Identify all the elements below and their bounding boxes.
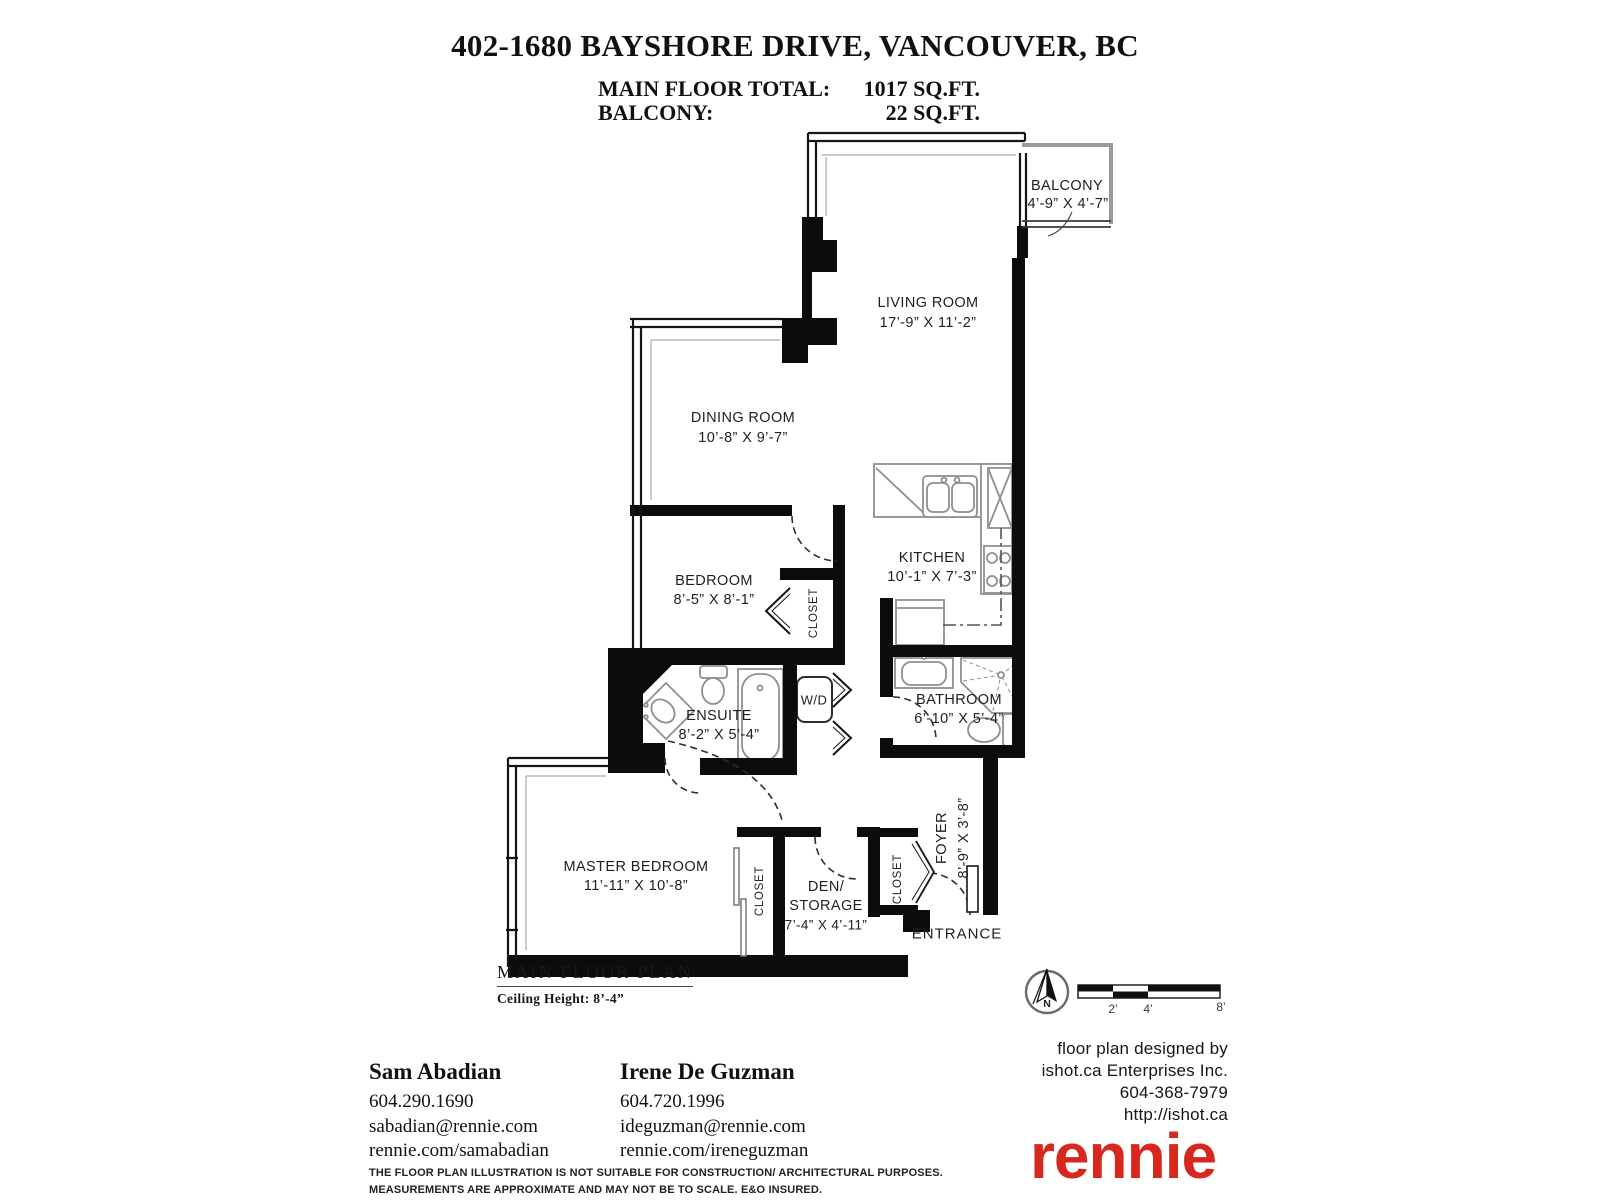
scale-bar (1078, 985, 1220, 998)
summary-label: BALCONY: (598, 101, 713, 124)
agent-card-2: Irene De Guzman 604.720.1996 ideguzman@r… (620, 1058, 808, 1164)
room-label-kitchen: KITCHEN (899, 550, 965, 566)
agent-phone: 604.290.1690 (369, 1090, 549, 1115)
sliding-closet-doors (734, 848, 746, 956)
floorplan-page: 402-1680 BAYSHORE DRIVE, VANCOUVER, BC M… (0, 0, 1600, 1200)
summary-row: BALCONY: 22 SQ.FT. (598, 101, 980, 124)
scale-tick-4ft: 4’ (1143, 1002, 1152, 1016)
designer-phone: 604-368-7979 (1042, 1082, 1228, 1104)
room-dims-master: 11’-11” X 10’-8” (584, 878, 688, 894)
room-dims-dining: 10’-8” X 9’-7” (698, 430, 787, 446)
designer-line-1: floor plan designed by (1042, 1038, 1228, 1060)
agent-website: rennie.com/ireneguzman (620, 1139, 808, 1164)
agent-name: Sam Abadian (369, 1058, 549, 1085)
room-dims-foyer: 8’-9” X 3’-8” (956, 798, 972, 879)
room-dims-balcony: 4’-9” X 4’-7” (1028, 196, 1109, 212)
closet-label-master: CLOSET (754, 866, 766, 916)
area-summary: MAIN FLOOR TOTAL: 1017 SQ.FT. BALCONY: 2… (598, 77, 980, 125)
room-dims-den: 7’-4” X 4’-11” (785, 918, 868, 933)
designer-line-2: ishot.ca Enterprises Inc. (1042, 1060, 1228, 1082)
room-label-bedroom: BEDROOM (675, 573, 753, 589)
room-label-dining: DINING ROOM (691, 410, 795, 426)
room-label-master: MASTER BEDROOM (564, 859, 709, 875)
room-label-foyer: FOYER (934, 812, 950, 864)
agent-website: rennie.com/samabadian (369, 1139, 549, 1164)
room-dims-living: 17’-9” X 11’-2” (880, 315, 977, 331)
compass-north-label: N (1043, 998, 1051, 1010)
disclaimer-line-1: THE FLOOR PLAN ILLUSTRATION IS NOT SUITA… (369, 1165, 943, 1182)
room-dims-bedroom: 8’-5” X 8’-1” (674, 592, 755, 608)
disclaimer-line-2: MEASUREMENTS ARE APPROXIMATE AND MAY NOT… (369, 1182, 943, 1199)
room-dims-bathroom: 6’-10” X 5’-4” (914, 711, 1003, 727)
room-label-balcony: BALCONY (1031, 178, 1103, 194)
room-label-ensuite: ENSUITE (686, 708, 752, 724)
room-label-den-1: DEN/ (808, 879, 844, 895)
room-label-living: LIVING ROOM (877, 295, 978, 311)
plan-name-heading: MAIN FLOOR PLAN (497, 962, 693, 987)
disclaimer: THE FLOOR PLAN ILLUSTRATION IS NOT SUITA… (369, 1165, 943, 1199)
designer-credit: floor plan designed by ishot.ca Enterpri… (1042, 1038, 1228, 1126)
ceiling-height: Ceiling Height: 8’-4” (497, 991, 693, 1007)
summary-value: 22 SQ.FT. (886, 101, 980, 124)
room-label-den-2: STORAGE (789, 898, 862, 914)
scale-tick-2ft: 2’ (1108, 1002, 1117, 1016)
agent-phone: 604.720.1996 (620, 1090, 808, 1115)
summary-value: 1017 SQ.FT. (864, 77, 980, 100)
entrance-label: ENTRANCE (912, 926, 1003, 943)
summary-label: MAIN FLOOR TOTAL: (598, 77, 830, 100)
rennie-logo: rennie (1030, 1124, 1216, 1188)
closet-label-foyer: CLOSET (892, 854, 904, 904)
room-dims-kitchen: 10’-1” X 7’-3” (887, 569, 976, 585)
agent-email: ideguzman@rennie.com (620, 1115, 808, 1140)
summary-row: MAIN FLOOR TOTAL: 1017 SQ.FT. (598, 77, 980, 100)
agent-name: Irene De Guzman (620, 1058, 808, 1085)
scale-tick-8ft: 8’ (1216, 1000, 1225, 1014)
closet-label-bedroom: CLOSET (808, 588, 820, 638)
plan-name-block: MAIN FLOOR PLAN Ceiling Height: 8’-4” (497, 962, 693, 1007)
room-dims-ensuite: 8’-2” X 5’-4” (679, 727, 760, 743)
balcony-leader-line (1048, 212, 1072, 236)
agent-email: sabadian@rennie.com (369, 1115, 549, 1140)
page-title: 402-1680 BAYSHORE DRIVE, VANCOUVER, BC (451, 28, 1139, 64)
room-label-bathroom: BATHROOM (916, 692, 1002, 708)
floorplan-drawing (0, 0, 1600, 1200)
agent-card-1: Sam Abadian 604.290.1690 sabadian@rennie… (369, 1058, 549, 1164)
washer-dryer-label: W/D (801, 693, 827, 708)
